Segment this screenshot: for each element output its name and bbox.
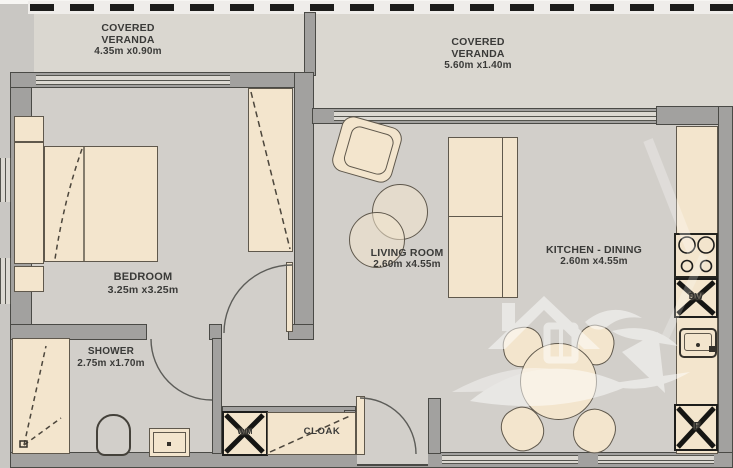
- hob: [674, 233, 718, 278]
- toilet: [96, 414, 131, 456]
- floor-plan: COVERED VERANDA 4.35m x0.90m COVERED VER…: [0, 0, 733, 468]
- bed-headboard: [14, 142, 44, 264]
- veranda-right-floor: [310, 12, 733, 112]
- sofa-back-line: [502, 138, 503, 297]
- wall-bedroom-right: [294, 72, 314, 338]
- sink-drain: [696, 343, 700, 347]
- wall-veranda-divider: [304, 12, 316, 76]
- window-bedroom: [36, 75, 230, 85]
- kitchen-dining-name: KITCHEN - DINING: [546, 244, 642, 256]
- balcony-railing: [30, 4, 733, 11]
- shower-name: SHOWER: [77, 346, 144, 358]
- wall-kitchen-pillar: [656, 106, 720, 125]
- basin-tap: [167, 442, 171, 446]
- sofa-cushion-line: [449, 216, 502, 217]
- nightstand-top: [14, 116, 44, 142]
- bedroom-label: BEDROOM 3.25m x3.25m: [108, 271, 179, 296]
- sink-basin: [684, 333, 712, 351]
- living-room-label: LIVING ROOM 2.60m x4.55m: [371, 247, 444, 271]
- veranda-right-name-1: COVERED: [444, 36, 511, 48]
- kitchen-dining-label: KITCHEN - DINING 2.60m x4.55m: [546, 244, 642, 268]
- window-bottom-2: [598, 455, 714, 464]
- entrance-door-leaf: [356, 396, 365, 455]
- wall-entrance-right-jamb: [428, 398, 441, 454]
- armchair-seat: [342, 124, 396, 177]
- window-left-2: [0, 258, 11, 304]
- sink: [679, 328, 717, 358]
- bedroom-name: BEDROOM: [108, 271, 179, 284]
- shower-tray: [12, 338, 70, 454]
- window-bottom-1: [442, 455, 578, 464]
- veranda-left-label: COVERED VERANDA 4.35m x0.90m: [94, 22, 161, 58]
- kitchen-dining-dims: 2.60m x4.55m: [546, 256, 642, 268]
- cloak-label: CLOAK: [304, 427, 341, 438]
- sliding-door-living: [334, 111, 656, 121]
- basin: [149, 428, 190, 457]
- dishwasher-label: DW: [689, 292, 704, 302]
- dining-table: [520, 343, 597, 420]
- veranda-right-name-2: VERANDA: [444, 48, 511, 60]
- sofa: [448, 137, 518, 298]
- wall-shower-divider: [212, 338, 222, 454]
- bed: [44, 146, 158, 262]
- veranda-left-floor: [34, 12, 310, 76]
- bedroom-door-leaf: [286, 262, 293, 332]
- entrance-threshold: [357, 452, 428, 466]
- living-room-name: LIVING ROOM: [371, 247, 444, 259]
- living-room-dims: 2.60m x4.55m: [371, 259, 444, 271]
- veranda-left-name-2: VERANDA: [94, 34, 161, 46]
- wall-right: [718, 106, 733, 468]
- veranda-right-label: COVERED VERANDA 5.60m x1.40m: [444, 36, 511, 72]
- veranda-left-name-1: COVERED: [94, 22, 161, 34]
- shower-label: SHOWER 2.75m x1.70m: [77, 346, 144, 369]
- washing-machine-label: W/M: [238, 429, 253, 437]
- bedroom-dims: 3.25m x3.25m: [108, 284, 179, 296]
- fridge-label: F: [694, 421, 700, 433]
- nightstand-bottom: [14, 266, 44, 292]
- veranda-left-dims: 4.35m x0.90m: [94, 46, 161, 58]
- wardrobe: [248, 88, 293, 252]
- veranda-right-dims: 5.60m x1.40m: [444, 60, 511, 72]
- sink-tap: [709, 346, 715, 352]
- shower-dims: 2.75m x1.70m: [77, 358, 144, 370]
- window-left-1: [0, 158, 11, 202]
